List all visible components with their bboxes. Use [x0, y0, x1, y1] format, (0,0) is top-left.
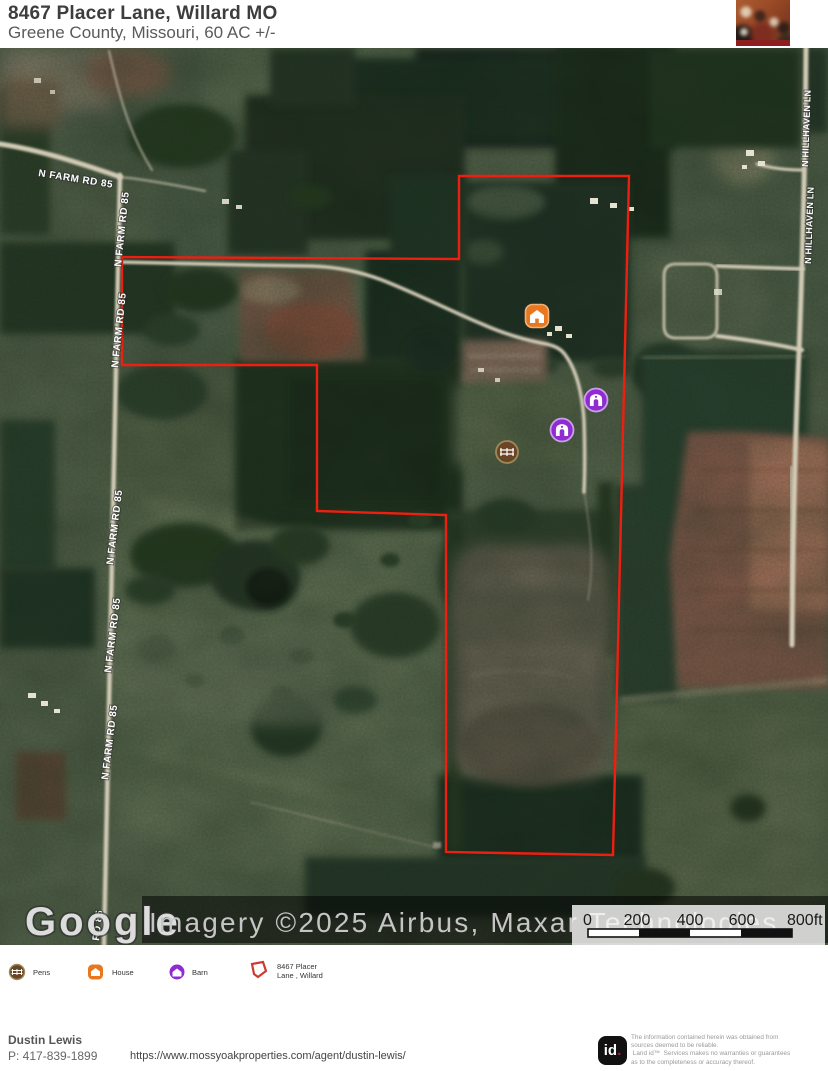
svg-text:8467 Placer: 8467 Placer	[277, 962, 318, 971]
svg-text:House: House	[112, 968, 134, 977]
svg-text:400: 400	[677, 912, 704, 929]
svg-text:0: 0	[583, 912, 592, 929]
svg-text:Lane , Willard: Lane , Willard	[277, 971, 323, 980]
svg-text:200: 200	[624, 912, 651, 929]
svg-text:Barn: Barn	[192, 968, 208, 977]
svg-text:800ft: 800ft	[787, 912, 823, 929]
svg-text:600: 600	[729, 912, 756, 929]
svg-text:Pens: Pens	[33, 968, 50, 977]
